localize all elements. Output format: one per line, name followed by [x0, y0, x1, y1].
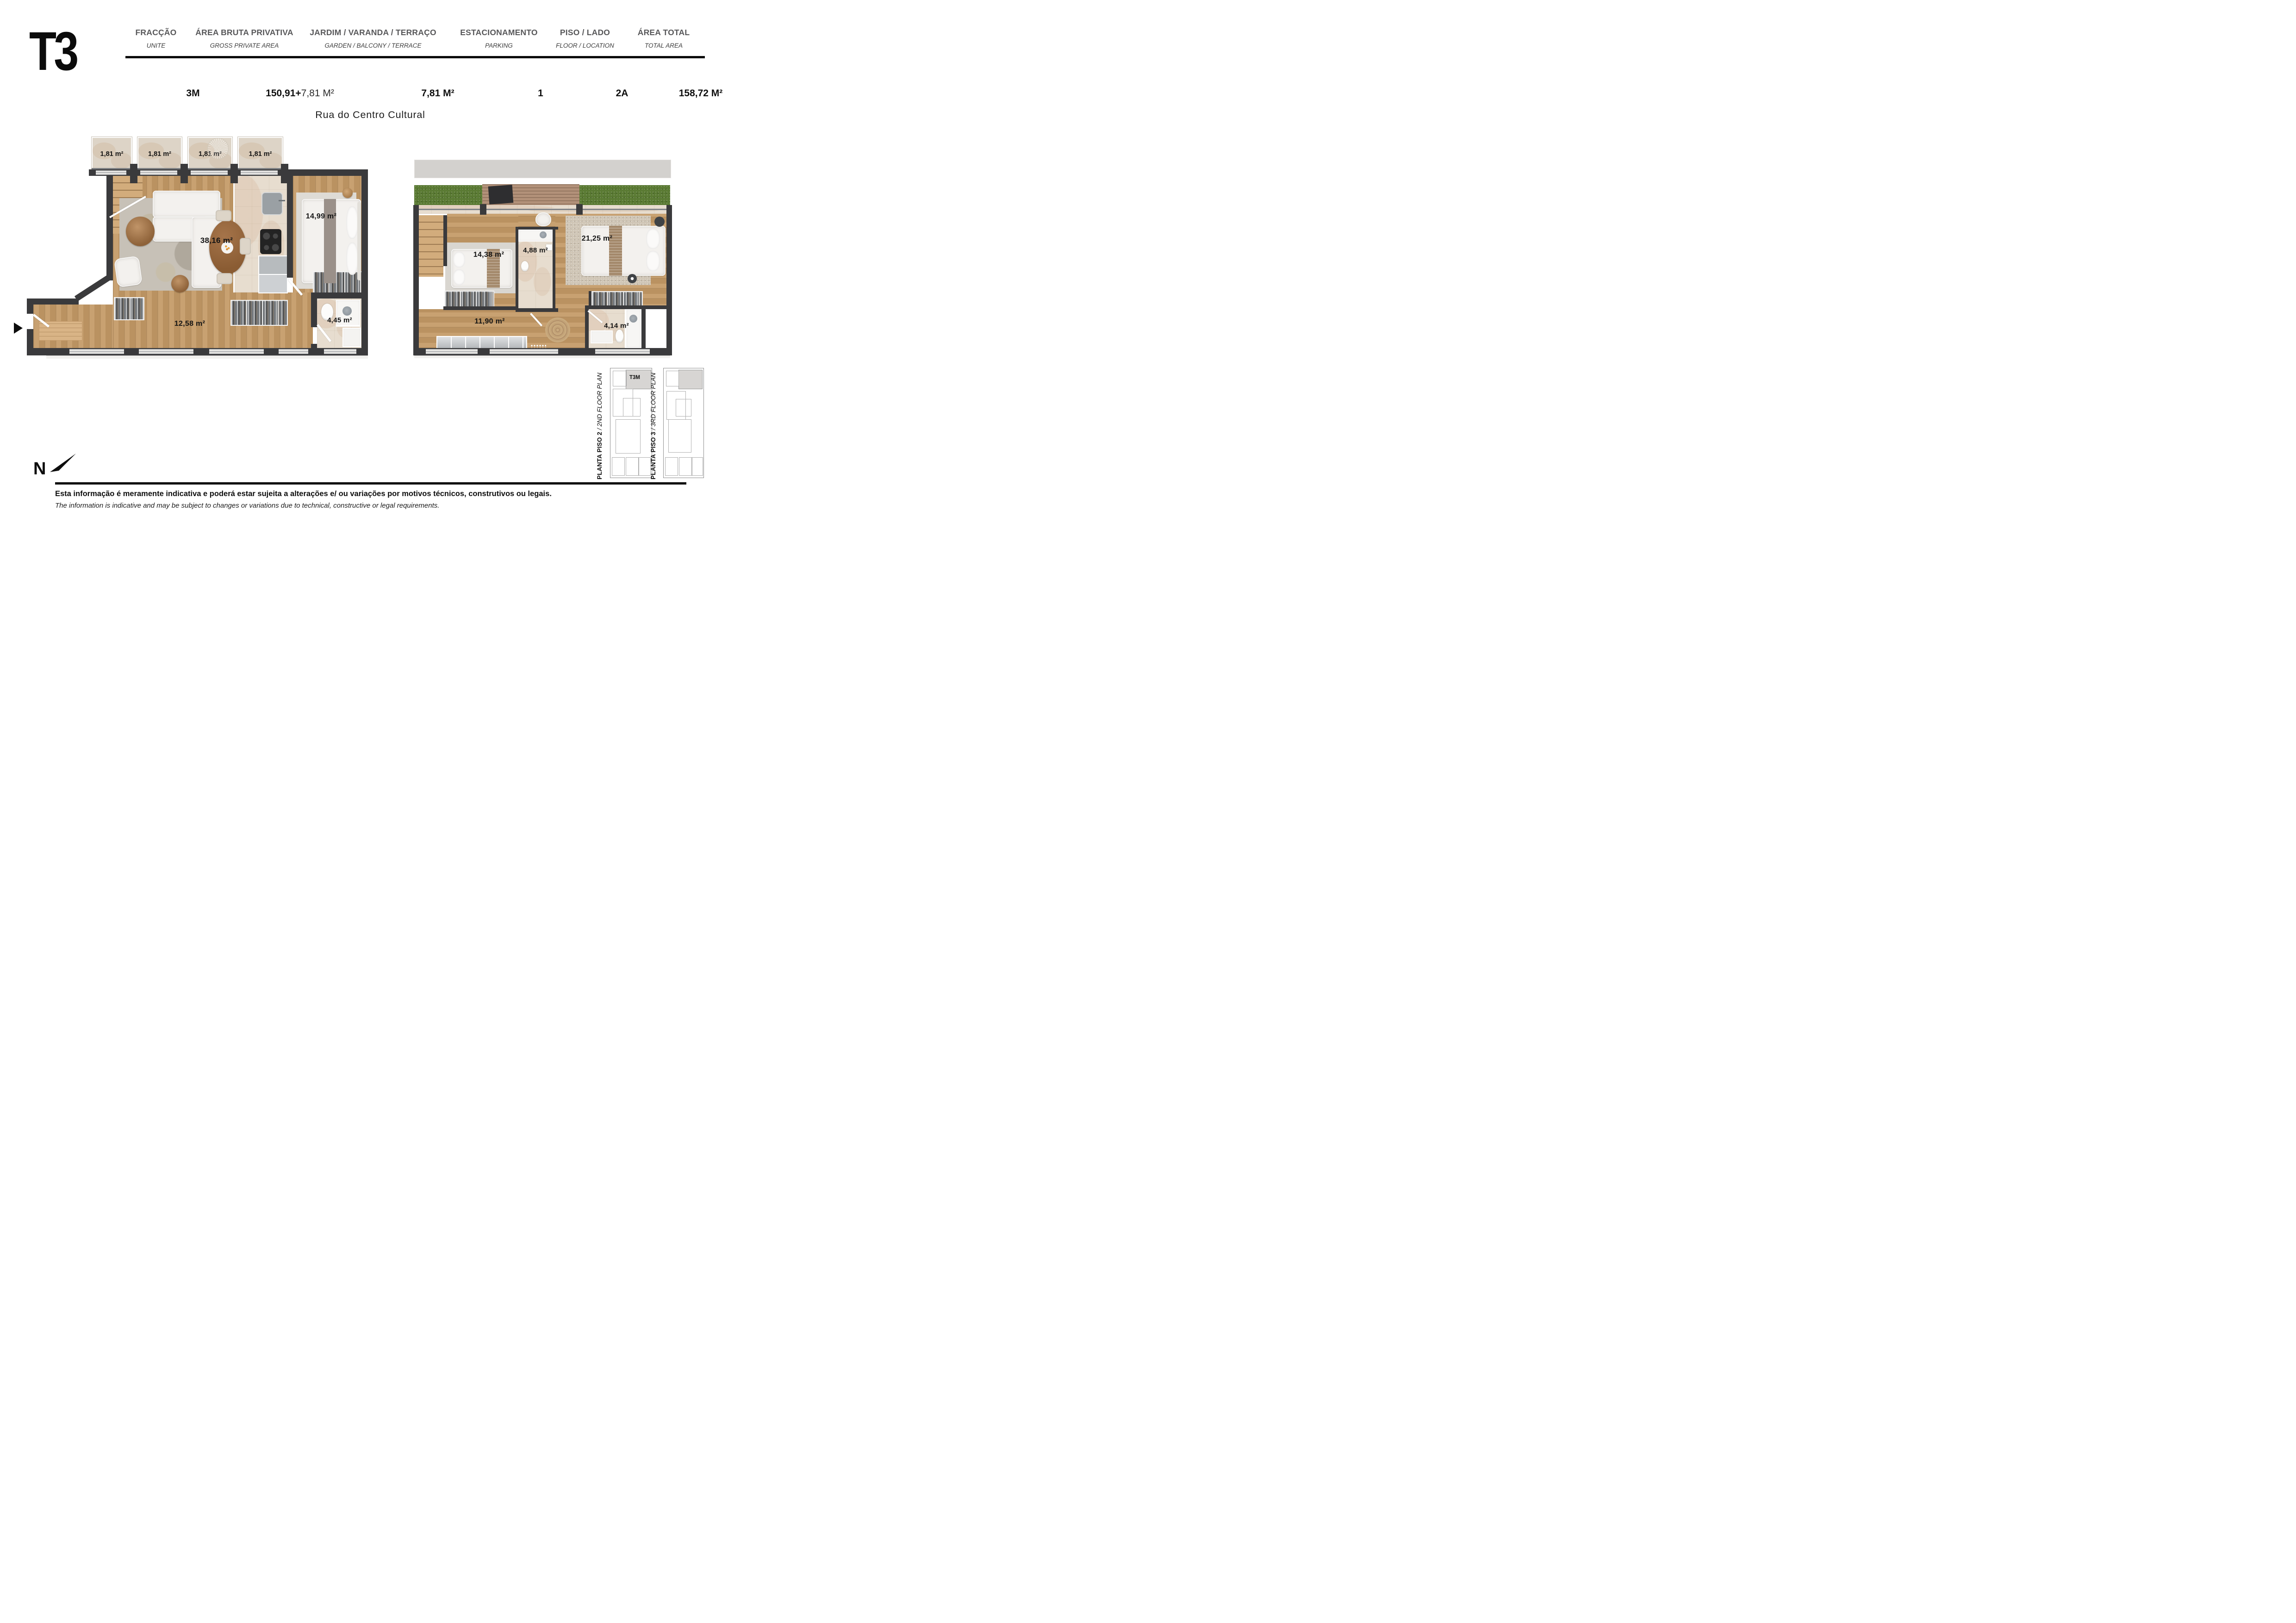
col-value: 3M [156, 88, 230, 99]
col-value-bold: 150,91+ [266, 88, 301, 99]
window-top-1 [96, 170, 126, 175]
header-divider [125, 56, 705, 58]
window-bottom-5 [324, 349, 356, 354]
col-value: 2A [585, 88, 659, 99]
midbath-wall-top [516, 227, 558, 230]
side-table-black-1 [654, 217, 665, 227]
col-label-pt: JARDIM / VARANDA / TERRAÇO [308, 28, 438, 37]
mini-plan-floor3-highlight [678, 370, 703, 389]
wall-left [106, 169, 113, 280]
midbath-wall-left [516, 227, 518, 312]
bedroom-wardrobe [313, 271, 363, 294]
header-col-jardim: JARDIM / VARANDA / TERRAÇO GARDEN / BALC… [308, 28, 438, 49]
bathroom2-wall-top [585, 305, 666, 309]
mini-plan2-stair-1 [612, 457, 625, 476]
col-label-pt: PISO / LADO [548, 28, 622, 37]
bed-pillow-1 [346, 206, 358, 239]
kitchen-faucet [279, 200, 285, 201]
disclaimer-pt: Esta informação é meramente indicativa e… [55, 490, 703, 498]
midbath-shower [518, 230, 553, 242]
wall-diagonal [75, 274, 113, 301]
plan3-wall-right [666, 205, 672, 355]
side-table [171, 275, 189, 292]
window-bottom-1 [69, 349, 124, 354]
disclaimer-en: The information is indicative and may be… [55, 502, 703, 510]
col-value-light: 7,81 M² [301, 88, 334, 99]
compass-arrow-icon [50, 454, 76, 472]
midbath-shower-head-icon [540, 231, 547, 238]
bathroom-vanity [342, 328, 361, 347]
window-sill-strip [46, 355, 368, 359]
col-label-pt: FRACÇÃO [119, 28, 193, 37]
mini-plan3-room-4 [676, 399, 691, 417]
mini-plan-floor2-label: PLANTA PISO 2 / 2ND FLOOR PLAN [596, 366, 603, 479]
coffee-table [126, 217, 155, 246]
cooktop [260, 229, 281, 254]
header-col-area-total: ÁREA TOTAL TOTAL AREA 158,72 M² [627, 28, 701, 49]
wall-right [361, 169, 368, 355]
headboard [357, 202, 361, 280]
mini-plan3-stair-1 [665, 457, 678, 476]
mini-plan-floor3-label-bold: PLANTA PISO 3 [650, 432, 657, 479]
nightstand-1 [342, 188, 353, 198]
wall-corridor-left-upper [27, 298, 33, 314]
terrace-window-rail [417, 209, 668, 210]
plan3-stairs [419, 215, 443, 277]
col-value: 158,72 M² [664, 88, 734, 99]
kitchen-counter-2 [258, 274, 288, 293]
mini-plan3-room-1 [666, 371, 679, 386]
street-label: Rua do Centro Cultural [278, 109, 463, 121]
bathroom2-wall-inner-right [641, 309, 646, 348]
window-bottom-3 [209, 349, 264, 354]
mini-plan-floor2-label-italic: / 2ND FLOOR PLAN [596, 373, 603, 432]
bedroom-left-wall-bottom [443, 306, 518, 310]
bathroom2-area-label: 4,14 m² [604, 322, 629, 330]
mini-plan2-room-1 [613, 371, 627, 386]
living-area-label: 38,16 m² [200, 236, 233, 245]
bathroom-wall-stub [311, 344, 317, 348]
jute-rug [545, 317, 570, 342]
balcony-1: 1,81 m² [92, 137, 132, 171]
plan3-window-bottom-1 [426, 349, 478, 354]
dining-chair-top [216, 210, 231, 221]
bed-pillow-2 [346, 243, 358, 275]
col-label-en: UNITE [119, 42, 193, 49]
window-top-3 [191, 170, 228, 175]
bathroom2-void [646, 309, 666, 348]
window-bottom-2 [139, 349, 193, 354]
terrace-pier-1 [480, 204, 486, 215]
dining-chair-right [240, 238, 251, 255]
header-col-area-bruta: ÁREA BRUTA PRIVATIVA GROSS PRIVATE AREA … [189, 28, 300, 49]
bathroom-wall-top [311, 292, 361, 298]
kitchen-sink [261, 192, 283, 215]
dining-chair-bottom [217, 273, 232, 284]
header-col-fraccao: FRACÇÃO UNITE 3M [119, 28, 193, 49]
sofa-back [153, 191, 220, 218]
window-top-2 [140, 170, 177, 175]
pouf [114, 256, 143, 288]
col-label-en: TOTAL AREA [627, 42, 701, 49]
col-label-en: PARKING [457, 42, 541, 49]
mini-plan3-stair-3 [692, 457, 703, 476]
terrace-mat [488, 185, 514, 205]
bedroom-right-pillow-2 [646, 251, 660, 271]
window-top-4 [241, 170, 278, 175]
terrace-planter-left [414, 185, 482, 205]
mini-plan2-room-4 [623, 398, 641, 417]
col-label-pt: ESTACIONAMENTO [457, 28, 541, 37]
col-label-en: GROSS PRIVATE AREA [189, 42, 300, 49]
mini-plan3-stair-2 [679, 457, 692, 476]
shower-head-icon [342, 306, 352, 316]
plan3-wall-left [413, 205, 419, 355]
col-value: 7,81 M² [373, 88, 503, 99]
header-col-estacionamento: ESTACIONAMENTO PARKING 1 [457, 28, 541, 49]
midbath-toilet [521, 261, 529, 271]
balcony-2-area: 1,81 m² [148, 150, 171, 158]
hall-wardrobe-small [114, 297, 144, 320]
balcony-4-area: 1,81 m² [249, 150, 272, 158]
mini-plan3-room-3 [668, 419, 691, 453]
bathroom2-vanity [591, 330, 613, 343]
compass-north-letter: N [33, 459, 46, 479]
bedroom-left-pillow-2 [453, 269, 465, 285]
bathroom-wall-left [311, 298, 317, 327]
bedroom-left-wardrobe [444, 291, 494, 308]
roof-band [414, 160, 671, 178]
bedroom-left-area-label: 14,38 m² [473, 251, 504, 259]
mini-plan2-stair-2 [626, 457, 639, 476]
entrance-arrow-icon [14, 323, 23, 334]
bathroom-area-label: 4,45 m² [327, 317, 352, 324]
balcony-4: 1,81 m² [238, 137, 283, 171]
bedroom-area-label: 14,99 m² [306, 212, 336, 221]
plan3-hall-area-label: 11,90 m² [474, 317, 505, 326]
hall-closet [230, 300, 288, 326]
header-col-piso-lado: PISO / LADO FLOOR / LOCATION 2A [548, 28, 622, 49]
unit-type-logo: T3 [29, 24, 76, 79]
side-table-black-2 [628, 274, 637, 283]
mini-plan2-room-3 [616, 419, 641, 454]
col-label-pt: ÁREA TOTAL [627, 28, 701, 37]
terrace-pier-2 [576, 204, 583, 215]
midbath-wall-right [553, 227, 555, 312]
floor-plan-sheet: T3 FRACÇÃO UNITE 3M ÁREA BRUTA PRIVATIVA… [0, 0, 734, 519]
col-label-en: GARDEN / BALCONY / TERRACE [308, 42, 438, 49]
window-bottom-4 [279, 349, 308, 354]
plan3-window-bottom-3 [595, 349, 650, 354]
mini-plan2-stair-3 [639, 457, 651, 476]
pendant-lamp-icon [207, 138, 229, 159]
bedroom-right-area-label: 21,25 m² [582, 235, 612, 243]
plan3-stairs-wall [443, 215, 447, 266]
hall-area-label: 12,58 m² [174, 320, 205, 328]
bathroom2-shower-head-icon [629, 315, 637, 323]
bedroom-right-wardrobe [591, 291, 643, 307]
col-label-en: FLOOR / LOCATION [548, 42, 622, 49]
col-value: 1 [499, 88, 582, 99]
bathroom2-toilet [616, 330, 623, 342]
armchair [535, 212, 551, 226]
balcony-2: 1,81 m² [137, 137, 182, 171]
shower-glass [336, 325, 360, 326]
plan3-window-bottom-2 [490, 349, 558, 354]
footer-divider [55, 482, 686, 485]
wall-corridor-left-lower [27, 329, 33, 355]
plan3-window-sill-strip [414, 355, 670, 358]
bedroom-left-pillow-1 [453, 252, 465, 267]
midbath-wall-bottom [516, 308, 558, 312]
shoes-row [530, 344, 546, 348]
kitchen-counter-1 [258, 255, 288, 275]
bedroom-right-runner [609, 226, 622, 276]
terrace-planter-right [579, 185, 670, 205]
wall-pier-2 [180, 164, 188, 183]
wall-corridor-top [33, 298, 79, 305]
mini-plan-floor2-label-bold: PLANTA PISO 2 [596, 432, 603, 479]
col-label-pt: ÁREA BRUTA PRIVATIVA [189, 28, 300, 37]
col-value: 150,91+7,81 M² [244, 88, 355, 99]
balcony-1-area: 1,81 m² [100, 150, 124, 158]
wall-living-bedroom [287, 169, 293, 278]
bedroom-right-wardrobe-stub [589, 291, 591, 305]
wall-pier-3 [230, 164, 238, 183]
bedroom-right-pillow-1 [646, 229, 660, 249]
mini-plan-floor2-unit-tag: T3M [629, 375, 640, 380]
midbath-area-label: 4,88 m² [523, 247, 548, 255]
bed-runner [324, 199, 336, 283]
wall-pier-1 [130, 164, 137, 183]
